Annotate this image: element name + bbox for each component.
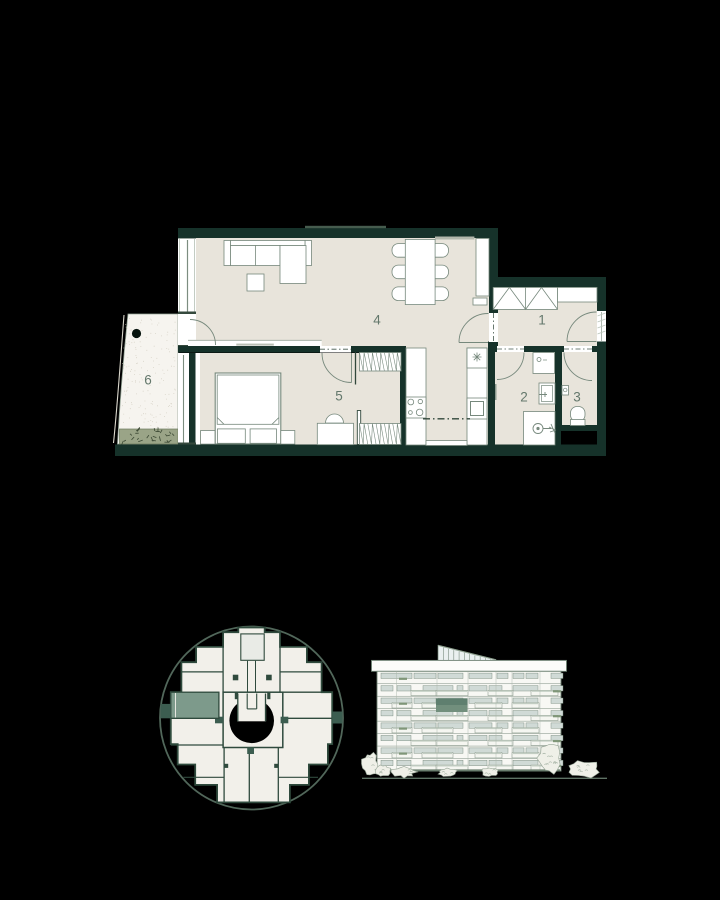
svg-text:2: 2 — [520, 390, 528, 405]
svg-text:3: 3 — [573, 390, 581, 405]
svg-text:6: 6 — [144, 373, 152, 388]
svg-text:1: 1 — [538, 313, 546, 328]
svg-text:5: 5 — [335, 389, 343, 404]
svg-text:4: 4 — [373, 313, 381, 328]
